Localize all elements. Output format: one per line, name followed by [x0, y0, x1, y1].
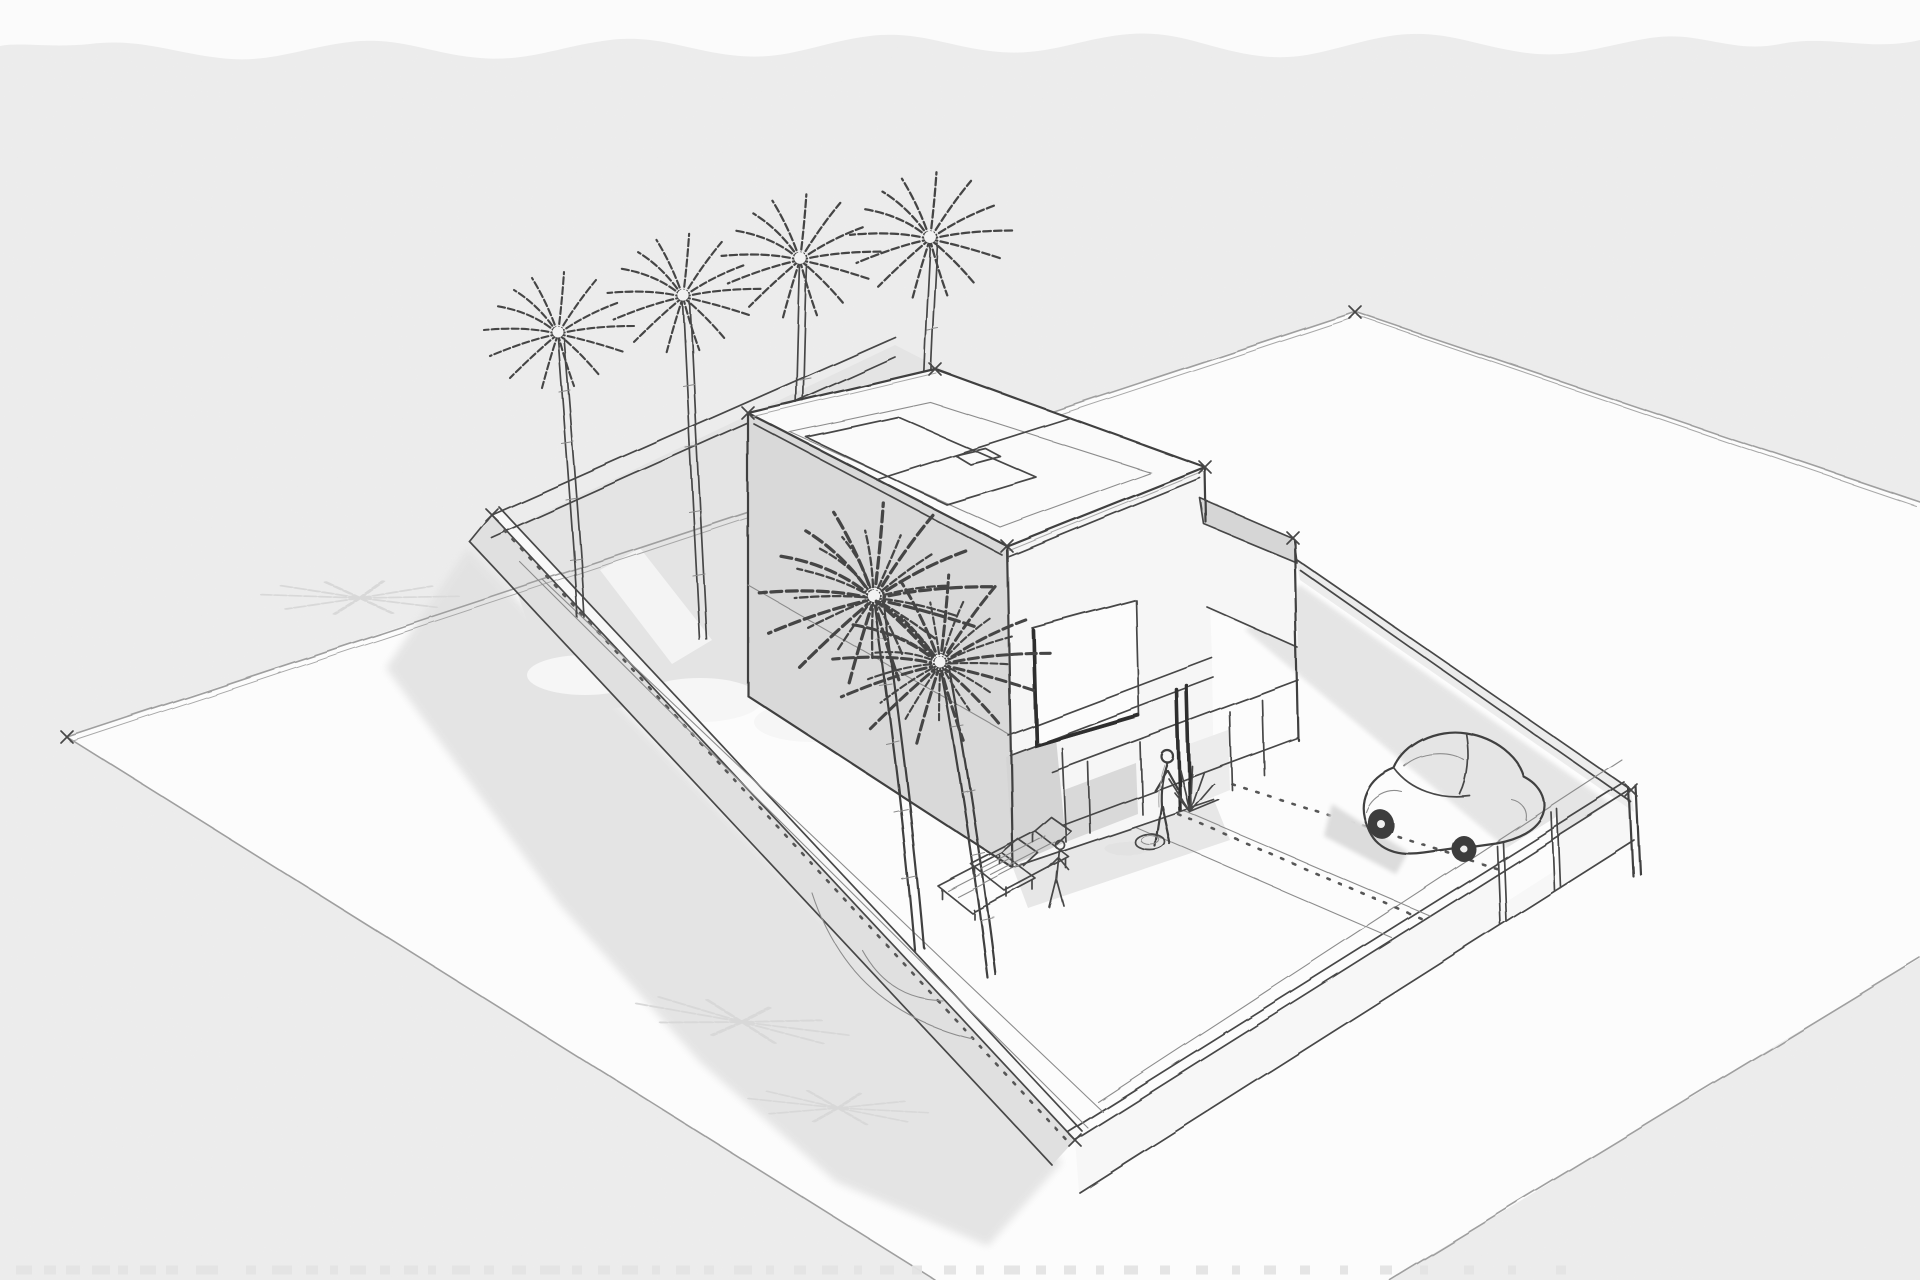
sketch-canvas [0, 0, 1920, 1280]
car-wheel-front-hub [1377, 820, 1385, 828]
sketch-page [0, 0, 1920, 1280]
car-wheel-rear-hub [1461, 846, 1468, 853]
